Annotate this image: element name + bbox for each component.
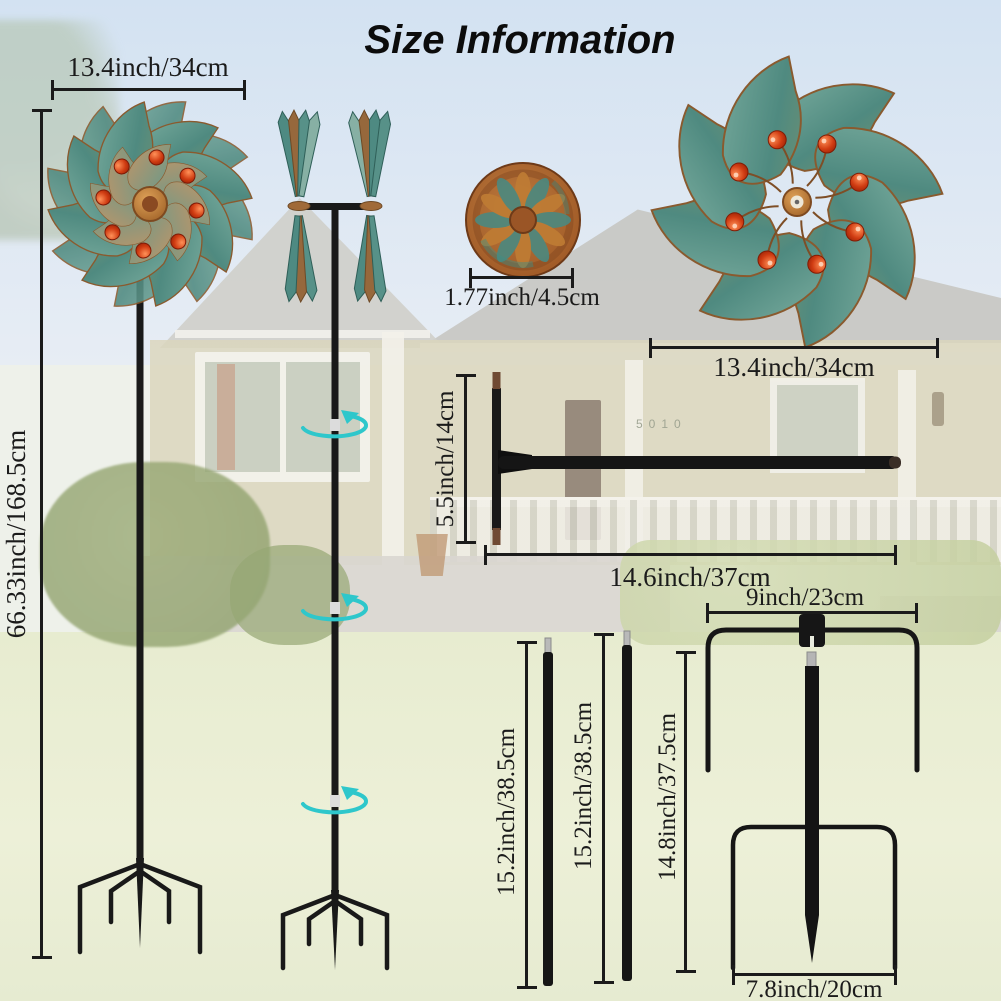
extension-pole-2: [622, 631, 632, 981]
label-medallion-diameter: 1.77inch/4.5cm: [402, 284, 642, 312]
measure-line-spinner-width-right: [650, 346, 938, 349]
measure-line-medallion: [470, 276, 573, 279]
label-spinner-width-left: 13.4inch/34cm: [28, 53, 268, 81]
medallion: [466, 163, 580, 277]
label-stake-top-width: 9inch/23cm: [685, 584, 925, 612]
label-total-height: 66.33inch/168.5cm: [2, 419, 32, 649]
label-pole-a-length: 15.2inch/38.5cm: [493, 697, 523, 927]
label-connector-height: 5.5inch/14cm: [432, 344, 462, 574]
measure-line-spinner-width-left: [52, 88, 245, 91]
measure-line-pole-a: [525, 642, 528, 988]
page-title: Size Information: [350, 18, 690, 63]
spinner-side-view: [276, 110, 392, 970]
label-stake-height: 14.8inch/37.5cm: [654, 682, 684, 912]
label-stake-bottom-width: 7.8inch/20cm: [694, 976, 934, 1001]
spinner-front-view: [42, 96, 259, 952]
label-pole-b-length: 15.2inch/38.5cm: [570, 671, 600, 901]
extension-pole-1: [543, 638, 553, 986]
measure-line-connector-length: [485, 553, 896, 556]
spinner-head-large: [645, 50, 949, 354]
measure-line-stake-height: [684, 652, 687, 972]
measure-line-pole-b: [602, 634, 605, 983]
size-information-image: 5010: [0, 0, 1001, 1001]
connector-pole: [492, 372, 901, 545]
spinner-front-head: [42, 96, 259, 313]
measure-line-total-height: [40, 110, 43, 958]
label-spinner-width-right: 13.4inch/34cm: [674, 353, 914, 381]
measure-line-connector-height: [464, 375, 467, 543]
ground-stake: [708, 614, 917, 968]
